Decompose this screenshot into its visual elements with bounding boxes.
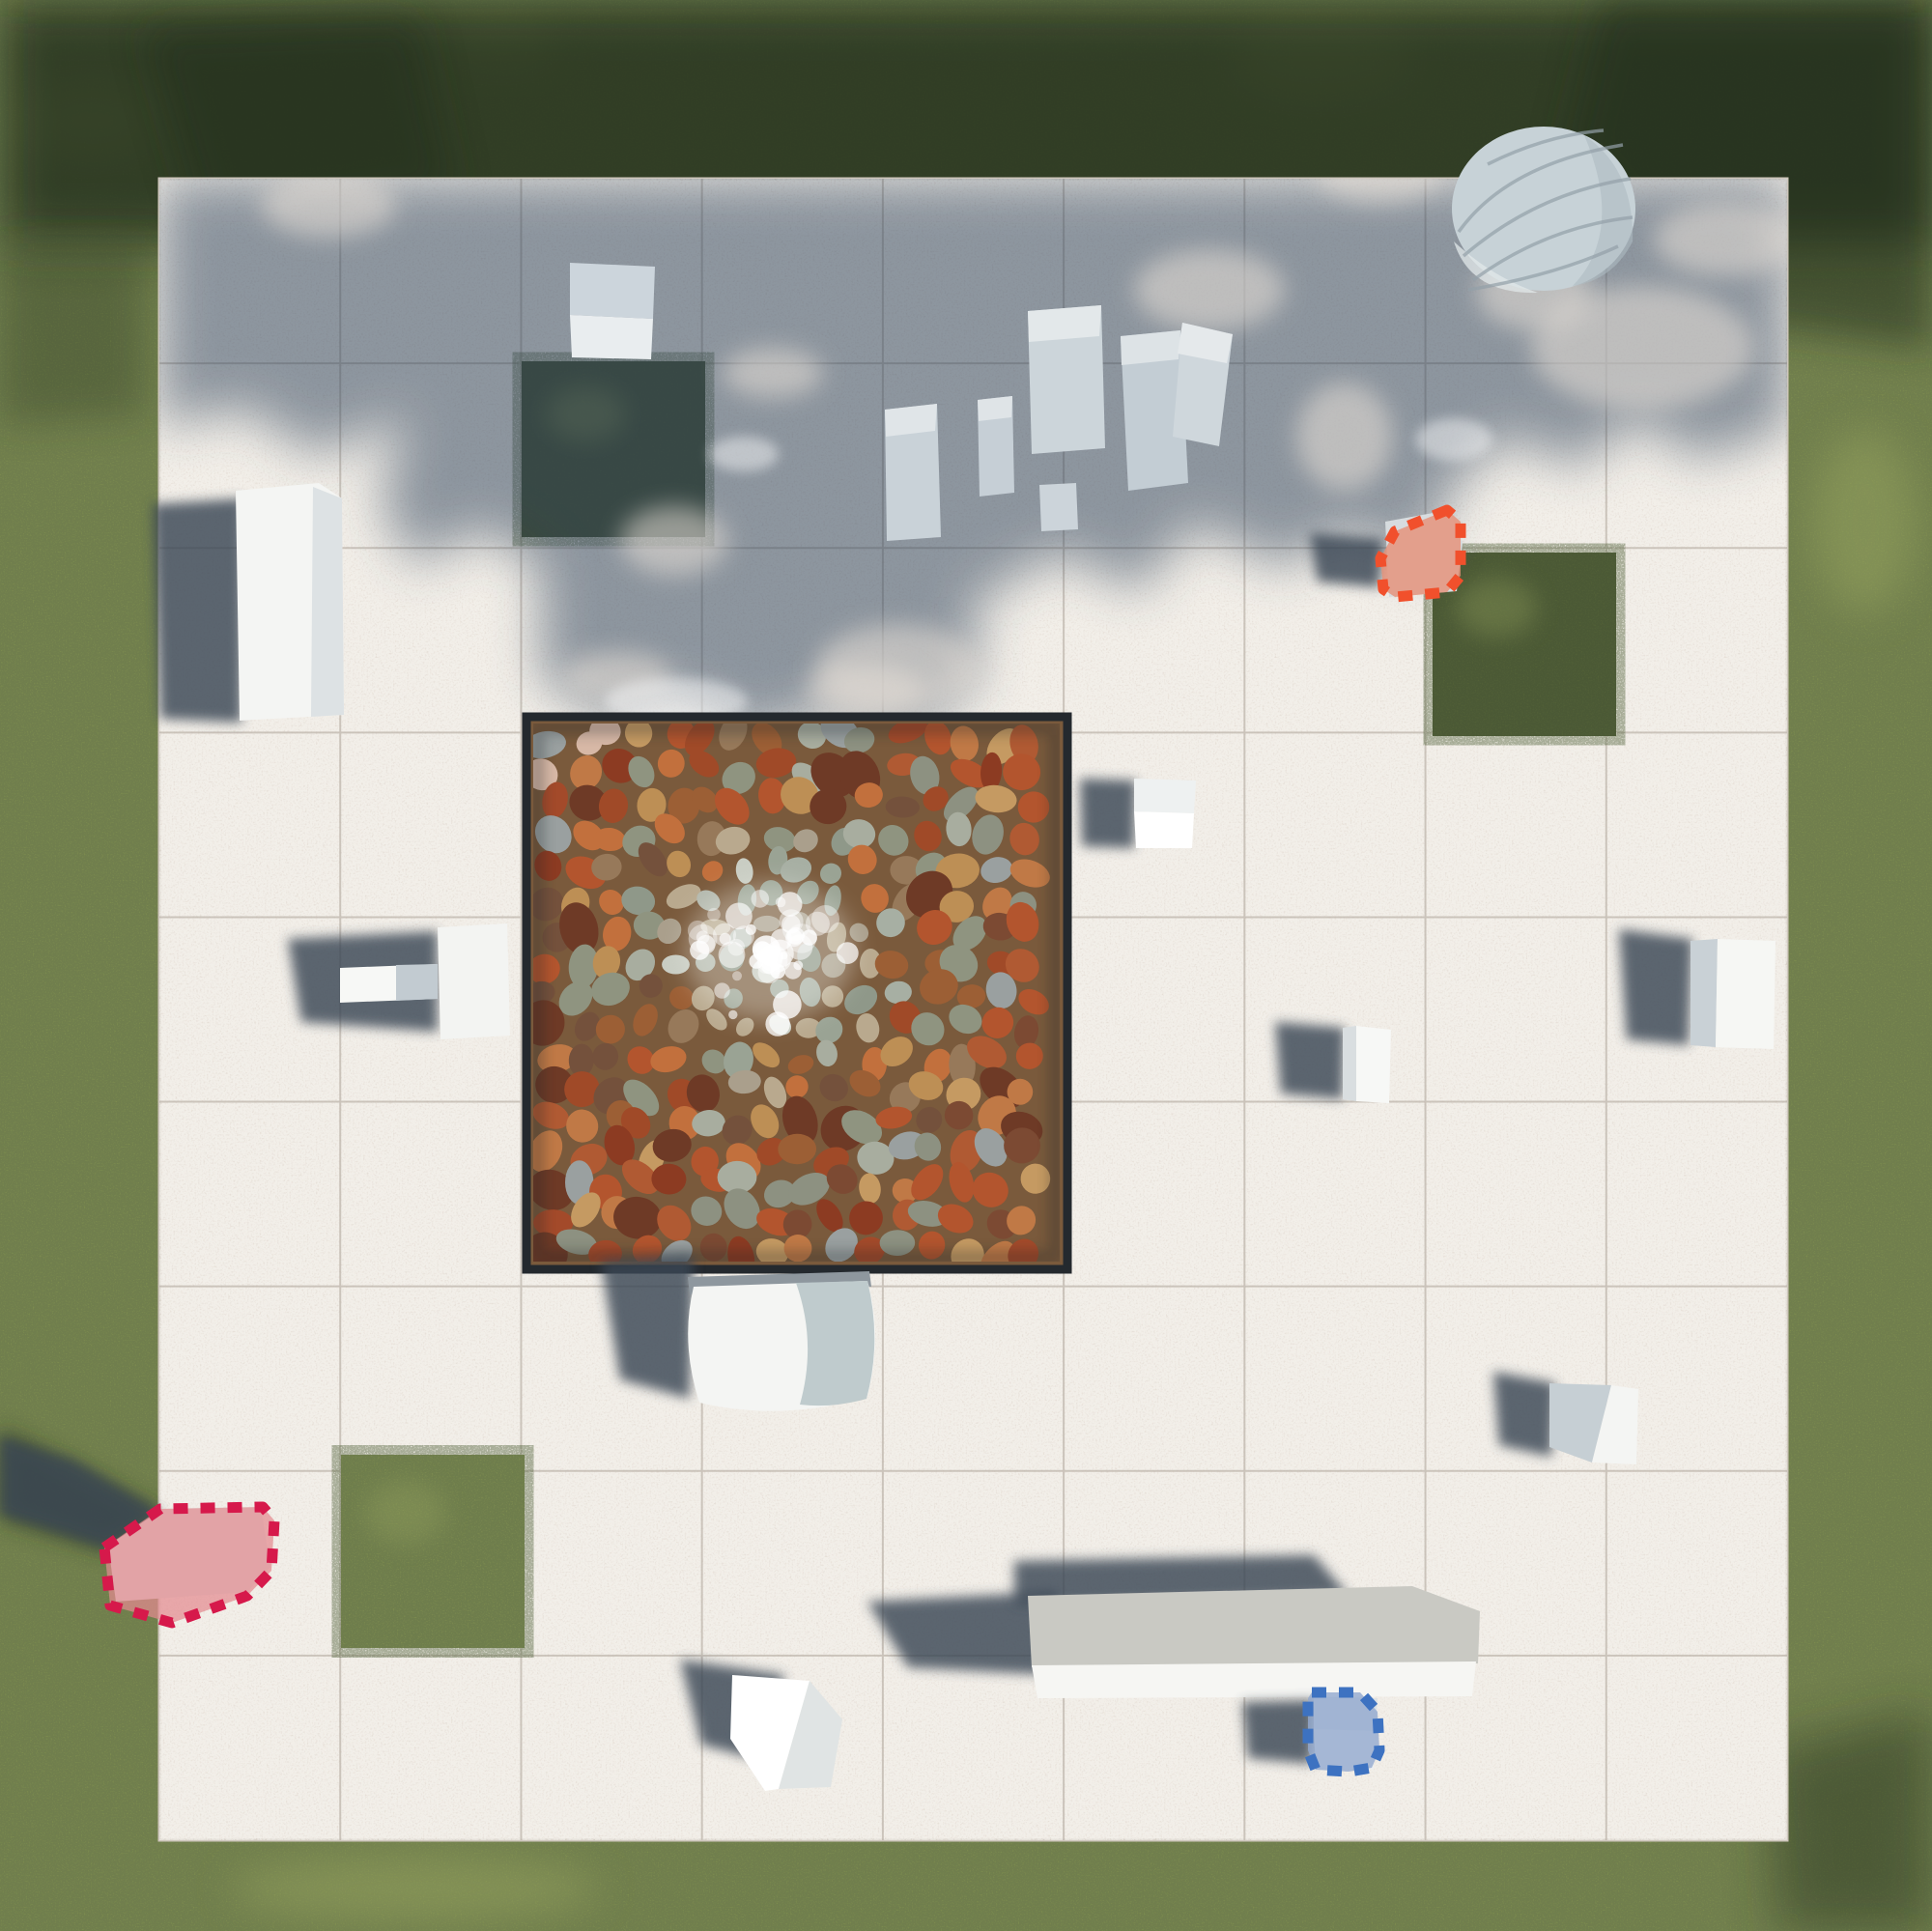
water-bubble-sparkle xyxy=(757,945,773,960)
marble-slab-upper-left xyxy=(153,483,344,723)
water-bubble-sparkle xyxy=(776,897,786,908)
aerial-photo xyxy=(0,0,1932,1931)
marble-bench-left xyxy=(288,923,510,1039)
cutout-light-patch xyxy=(365,1482,446,1544)
marble-face xyxy=(438,923,510,1039)
water-bubble-sparkle xyxy=(714,982,729,998)
bright-spill xyxy=(709,437,779,471)
marble-monolith-3 xyxy=(1028,305,1105,454)
marble-face xyxy=(311,487,344,717)
cast-shadow xyxy=(1619,929,1692,1045)
cast-shadow xyxy=(1310,533,1383,587)
marble-face xyxy=(1134,779,1196,813)
water-bubble-sparkle xyxy=(728,1010,737,1019)
marble-face xyxy=(1028,305,1101,342)
marble-cylinder xyxy=(1452,127,1635,293)
water-bubble-sparkle xyxy=(707,908,721,922)
grass-bright-patch xyxy=(232,1856,599,1921)
marble-face xyxy=(570,263,655,319)
marble-slab-right xyxy=(1619,929,1776,1049)
photo-stage xyxy=(0,0,1932,1931)
marble-cube-right-center xyxy=(1275,1022,1391,1103)
marble-face xyxy=(1690,939,1718,1047)
water-bubble-sparkle xyxy=(837,942,859,964)
marble-cube-small-center xyxy=(1039,483,1078,531)
water-bubble-sparkle xyxy=(732,971,742,980)
bench-shaded-face xyxy=(796,1281,874,1406)
cast-shadow xyxy=(1080,779,1136,848)
water-bubble-sparkle xyxy=(770,964,785,980)
marble-face xyxy=(978,396,1012,421)
water-bubble-sparkle xyxy=(688,921,708,941)
cast-shadow xyxy=(1275,1022,1345,1099)
grass-bright-patch xyxy=(1811,430,1918,613)
cutout-light-patch xyxy=(1457,579,1538,638)
blue-dashed-region-bottom[interactable] xyxy=(1308,1692,1379,1772)
cutout-grass-texture xyxy=(341,1455,525,1648)
marble-face xyxy=(396,964,438,1001)
water-bubble-sparkle xyxy=(752,890,770,908)
marble-cube-upper-left xyxy=(570,263,655,359)
tree-shadow-on-grass xyxy=(0,243,145,425)
sun-dapple xyxy=(1654,203,1801,276)
sun-dapple xyxy=(620,506,728,576)
marble-face xyxy=(1032,1661,1476,1698)
cast-shadow xyxy=(1493,1372,1555,1457)
sun-dapple xyxy=(805,664,924,718)
marble-face xyxy=(1134,811,1194,848)
pebble-fountain-pit xyxy=(518,707,1067,1281)
marble-face xyxy=(1343,1026,1356,1101)
marble-monolith-1 xyxy=(885,404,941,541)
marble-face xyxy=(1028,1586,1480,1667)
sun-dapple xyxy=(1134,249,1285,330)
sun-dapple xyxy=(723,348,823,398)
bright-spill xyxy=(1415,418,1492,461)
marble-face xyxy=(570,315,653,359)
water-bubble-sparkle xyxy=(733,925,754,947)
marble-cube-right-of-pit xyxy=(1080,779,1196,848)
water-bubble-sparkle xyxy=(780,909,804,933)
marble-face xyxy=(1356,1026,1391,1103)
marble-face xyxy=(1121,330,1180,365)
cast-shadow xyxy=(153,498,243,723)
grass-cutout-lower-left xyxy=(341,1455,525,1648)
marble-face xyxy=(1039,483,1078,531)
sun-dapple xyxy=(1296,383,1393,491)
tree-shadow-on-grass xyxy=(1766,1710,1932,1931)
sun-dapple xyxy=(261,172,396,238)
marble-face xyxy=(1716,939,1776,1049)
marble-monolith-2 xyxy=(978,396,1014,497)
water-bubble-sparkle xyxy=(765,1011,789,1036)
